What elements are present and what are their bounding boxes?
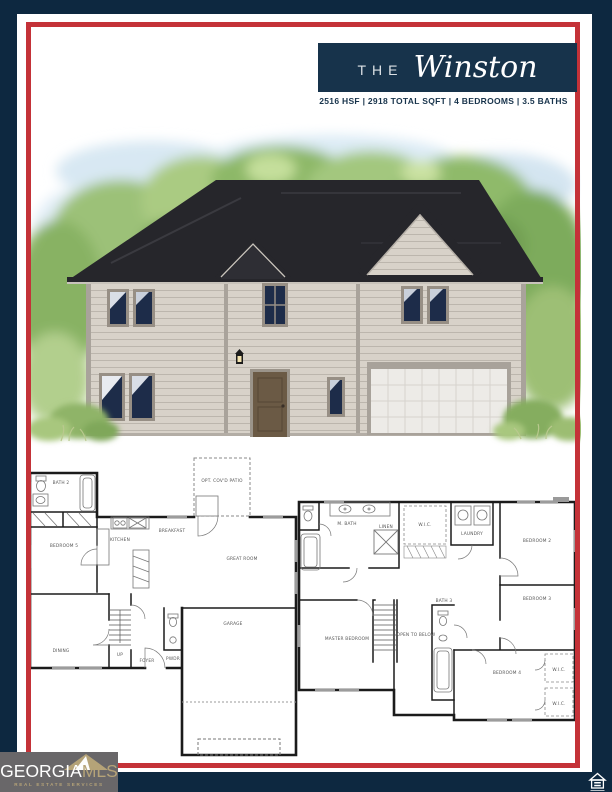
room-label-dining: DINING [53,648,70,654]
room-label-foyer: FOYER [140,658,155,664]
first-floor-plan: OPT. COV'D PATIO [30,458,296,755]
room-label-stairs-up: UP [117,652,123,658]
room-label-master-bedroom: MASTER BEDROOM [325,636,369,642]
room-label-patio: OPT. COV'D PATIO [201,478,243,484]
plan-stats: 2516 HSF | 2918 TOTAL SQFT | 4 BEDROOMS … [310,96,577,106]
logo-text-mls: MLS [82,761,118,781]
plan-title-prefix: THE [357,62,403,78]
room-label-great-room: GREAT ROOM [226,556,257,562]
room-label-open-to-below: OPEN TO BELOW [397,632,436,638]
equal-housing-icon [588,771,607,792]
room-label-bedroom5: BEDROOM 5 [50,543,78,549]
georgia-mls-logo: GEORGIAMLS REAL ESTATE SERVICES [0,752,118,792]
logo-text-georgia: GEORGIA [0,761,82,781]
second-floor-plan: M. BATH LINEN W.I.C. LAUNDRY BEDROOM 2 B… [299,497,575,720]
room-label-garage: GARAGE [223,621,242,627]
front-door [250,369,290,437]
room-label-kitchen: KITCHEN [110,537,130,543]
room-label-breakfast: BREAKFAST [159,528,186,534]
garage-door [367,362,511,435]
house-elevation-illustration [31,123,581,463]
logo-tagline: REAL ESTATE SERVICES [0,782,118,787]
room-label-bath3: BATH 3 [436,598,453,604]
room-label-wic-a: W.I.C. [552,667,565,673]
room-label-wic: W.I.C. [418,522,431,528]
room-label-laundry: LAUNDRY [461,531,483,537]
room-label-bedroom3: BEDROOM 3 [523,596,551,602]
room-label-master-bath: M. BATH [337,521,356,527]
room-label-bedroom2: BEDROOM 2 [523,538,551,544]
room-label-linen: LINEN [379,524,393,530]
floor-plans: OPT. COV'D PATIO [17,450,595,766]
room-label-wic-b: W.I.C. [552,701,565,707]
plan-title-name: Winston [413,50,537,85]
room-label-powder: PWDR [166,656,180,662]
room-label-bath2: BATH 2 [53,480,70,486]
plan-title-banner: THE Winston [318,43,577,92]
room-label-bedroom4: BEDROOM 4 [493,670,521,676]
